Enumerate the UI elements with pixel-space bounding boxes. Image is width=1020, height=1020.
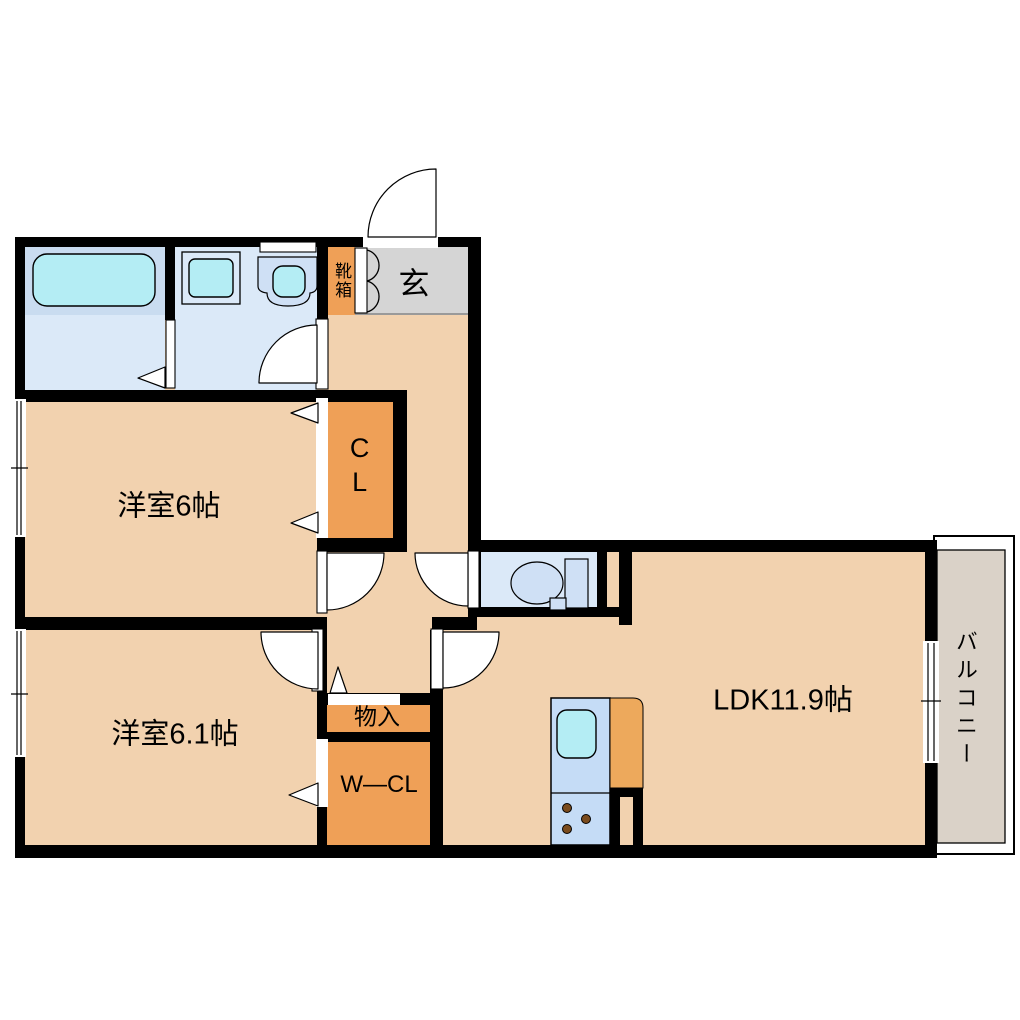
washroom-window	[260, 242, 316, 252]
wall-segment	[481, 540, 937, 552]
entrance-door-swing	[368, 169, 436, 237]
kitchen-end-niche	[620, 797, 633, 845]
toilet-tank	[565, 559, 588, 608]
kitchen-sink	[557, 710, 596, 758]
wall-segment	[430, 705, 443, 845]
toilet-base	[550, 598, 566, 610]
entrance-door-opening	[363, 236, 438, 248]
room-label-bedroom2: 洋室6.1帖	[111, 719, 238, 750]
wall-segment	[15, 237, 25, 858]
room-label-bedroom1: 洋室6帖	[117, 491, 220, 522]
bedroom1-door-leaf	[317, 551, 327, 613]
wall-segment	[597, 552, 607, 617]
ldk-door-leaf	[431, 629, 443, 689]
toilet-door-leaf	[468, 551, 479, 608]
shoe-cabinet-door-panel	[355, 248, 367, 313]
room-label-walk-in-closet: W―CL	[340, 772, 417, 798]
wall-segment	[317, 247, 328, 320]
bathtub	[33, 254, 155, 306]
wall-segment	[317, 538, 407, 552]
bathroom-door-panel	[166, 320, 175, 388]
stove-burner	[563, 804, 572, 813]
wall-segment	[619, 540, 632, 625]
room-label-entrance: 玄	[399, 267, 430, 300]
washing-machine	[189, 259, 233, 297]
entrance-step-line	[354, 313, 468, 315]
room-label-ldk: LDK11.9帖	[713, 685, 853, 716]
room-label-shoe-cabinet: 靴箱	[332, 262, 350, 300]
room-label-balcony: バルコニー	[953, 630, 977, 770]
kitchen-counter	[610, 698, 643, 788]
wall-segment	[393, 395, 407, 552]
wall-segment	[15, 617, 327, 630]
balcony-window	[921, 641, 941, 763]
wall-segment	[15, 390, 407, 402]
kitchen-unit	[551, 698, 643, 845]
stove-burner	[563, 825, 572, 834]
wall-segment	[15, 845, 937, 858]
stove-burner	[582, 815, 591, 824]
washroom-door-leaf	[316, 319, 328, 389]
wall-segment	[165, 247, 175, 320]
wall-segment	[432, 617, 477, 630]
floorplan-page: 洋室6帖 洋室6.1帖 LDK11.9帖 CL 玄 靴箱 物入 W―CL バルコ…	[0, 0, 1020, 1020]
wall-segment	[468, 237, 481, 552]
bedroom1-window	[11, 399, 28, 537]
bedroom2-window	[11, 629, 28, 757]
wall-segment	[320, 732, 430, 742]
room-label-storage: 物入	[354, 705, 400, 730]
vanity-sink-basin	[273, 266, 305, 297]
room-label-closet: CL	[344, 433, 373, 501]
